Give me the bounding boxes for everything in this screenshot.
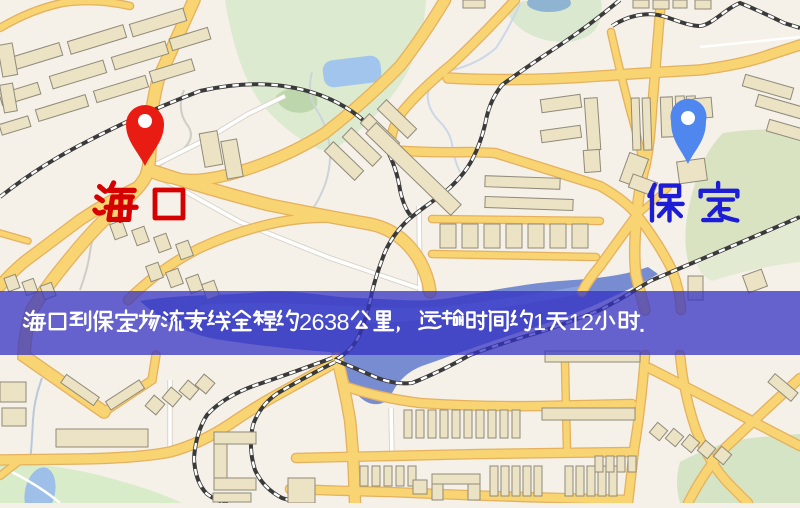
svg-text:2: 2 (299, 309, 312, 335)
svg-text:2: 2 (581, 309, 594, 335)
svg-text:1: 1 (533, 309, 546, 335)
svg-text:1: 1 (569, 309, 582, 335)
svg-text:6: 6 (312, 309, 325, 335)
svg-text:3: 3 (324, 309, 337, 335)
svg-text:8: 8 (337, 309, 350, 335)
